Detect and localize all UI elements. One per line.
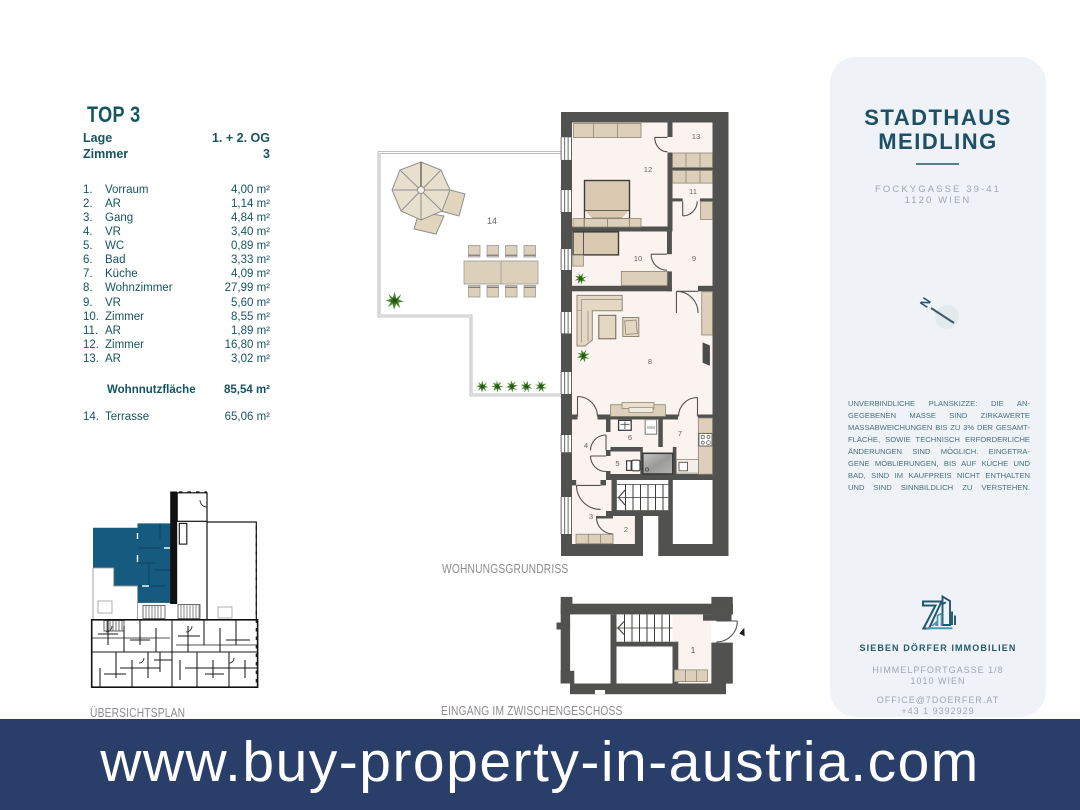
- svg-text:WM: WM: [647, 425, 655, 430]
- svg-text:1: 1: [691, 645, 696, 655]
- svg-text:11: 11: [689, 187, 697, 196]
- svg-text:4: 4: [584, 441, 588, 450]
- svg-text:14: 14: [487, 216, 497, 226]
- svg-text:9: 9: [692, 254, 696, 263]
- svg-text:10: 10: [634, 254, 642, 263]
- svg-text:13: 13: [692, 132, 700, 141]
- svg-text:5: 5: [615, 459, 619, 468]
- svg-text:7: 7: [678, 429, 682, 438]
- svg-text:6: 6: [628, 433, 632, 442]
- svg-text:3: 3: [589, 512, 593, 521]
- svg-text:12: 12: [644, 165, 652, 174]
- svg-text:8: 8: [648, 357, 652, 366]
- svg-text:2: 2: [624, 525, 628, 534]
